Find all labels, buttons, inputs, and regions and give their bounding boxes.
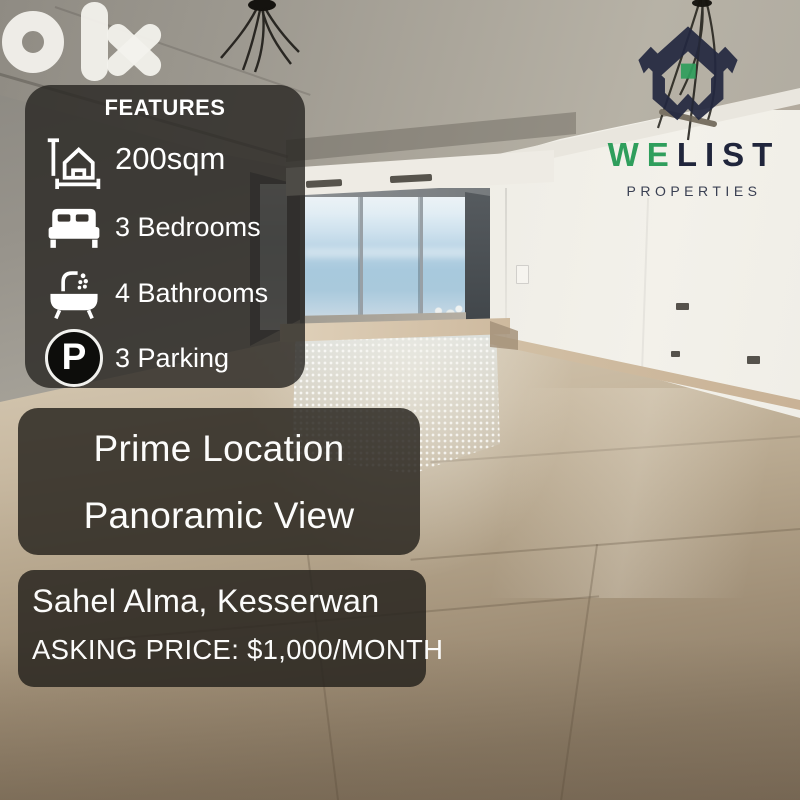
- feature-row-bedrooms: 3 Bedrooms: [25, 195, 305, 259]
- feature-bedrooms-label: 3 Bedrooms: [115, 212, 261, 243]
- parking-icon: P: [37, 329, 111, 387]
- floor-sheen: [470, 388, 800, 598]
- features-heading: FEATURES: [25, 93, 305, 123]
- area-icon: [37, 129, 111, 189]
- features-panel: FEATURES 200sqm: [25, 85, 305, 388]
- welist-name-list: LIST: [677, 136, 781, 173]
- highlight-line-2: Panoramic View: [84, 482, 355, 549]
- welist-subtitle: PROPERTIES: [592, 183, 796, 199]
- welist-name-we: WE: [608, 136, 677, 173]
- highlight-line-1: Prime Location: [94, 415, 345, 482]
- olx-letter-l: [81, 2, 108, 81]
- ac-vent: [390, 174, 432, 183]
- feature-area-label: 200sqm: [115, 141, 225, 177]
- feature-row-area: 200sqm: [25, 123, 305, 195]
- sea-view-window: [300, 188, 490, 336]
- bath-icon: [37, 262, 111, 324]
- hanging-wires: [205, 0, 335, 88]
- wall-outlet: [676, 303, 689, 310]
- wall-outlet: [671, 351, 680, 357]
- welist-wordmark: WELIST PROPERTIES: [592, 136, 796, 210]
- parking-letter: P: [62, 336, 87, 378]
- olx-letter-o: [2, 11, 64, 73]
- light-switch: [516, 265, 529, 284]
- listing-location: Sahel Alma, Kesserwan: [32, 583, 414, 620]
- wall-corner: [505, 188, 507, 340]
- olx-logo: [0, 2, 172, 88]
- window-frame-right: [465, 192, 490, 324]
- wall-outlet: [747, 356, 760, 364]
- sea-horizon-haze: [304, 248, 468, 258]
- feature-bathrooms-label: 4 Bathrooms: [115, 278, 268, 309]
- listing-info-badge: Sahel Alma, Kesserwan ASKING PRICE: $1,0…: [18, 570, 426, 687]
- feature-parking-label: 3 Parking: [115, 343, 229, 374]
- window-mullion: [360, 196, 363, 320]
- feature-row-bathrooms: 4 Bathrooms: [25, 259, 305, 327]
- highlights-badge: Prime Location Panoramic View: [18, 408, 420, 555]
- welist-name: WELIST: [592, 136, 796, 174]
- real-estate-ad: FEATURES 200sqm: [0, 0, 800, 800]
- welist-house-logo-icon: [626, 22, 750, 130]
- marble-floor: [0, 318, 800, 800]
- window-mullion: [420, 196, 423, 320]
- bed-icon: [37, 203, 111, 251]
- ac-vent: [306, 179, 342, 188]
- listing-asking-price: ASKING PRICE: $1,000/MONTH: [32, 634, 414, 666]
- feature-row-parking: P 3 Parking: [25, 327, 305, 389]
